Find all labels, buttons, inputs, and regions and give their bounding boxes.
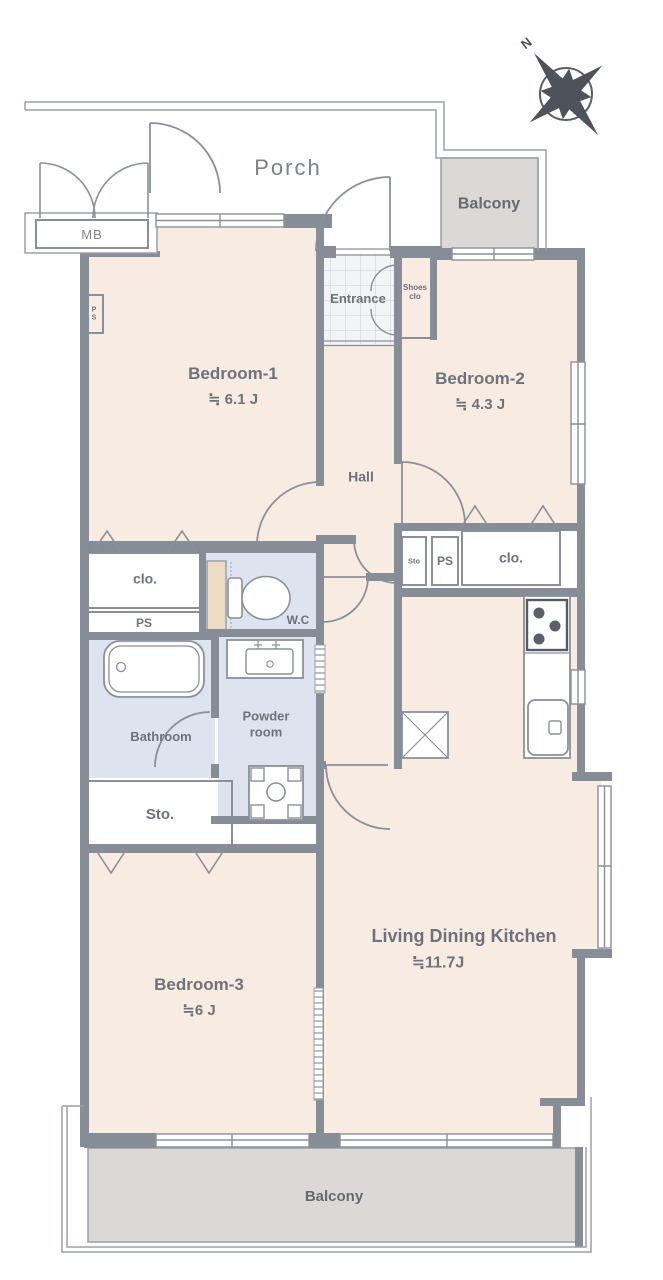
bedroom1-name: Bedroom-1 [188,364,278,384]
porch-label: Porch [254,155,321,181]
ldk-bay-window [598,786,611,948]
ldk-name: Living Dining Kitchen [372,926,557,948]
bedroom3-name: Bedroom-3 [154,975,244,995]
washing-machine-icon [249,766,303,820]
compass-rose: N [485,9,634,163]
refrigerator-space-icon [402,712,448,758]
mb-double-door-arcs [40,163,148,218]
storage-large-label: Sto. [146,806,174,824]
compass-north-label: N [518,34,535,52]
meter-box-label: MB [81,227,103,243]
floor-plan: N Porch MB Balcony Entrance Shoes clo Be… [0,0,663,1280]
bedroom1-north-window [156,214,284,227]
balcony-top-label: Balcony [458,194,520,213]
bedroom1-size: ≒ 6.1 J [208,391,258,409]
closet-right-label: clo. [499,550,523,567]
wc-label: W.C [287,613,310,627]
bedroom2-north-window [452,248,534,260]
wc-vanity [207,561,226,630]
ldk-south-window [340,1134,553,1147]
stove-icon [527,600,567,650]
shoes-closet-label: Shoes clo [403,283,427,301]
bathroom-label: Bathroom [130,729,191,745]
bathtub-icon [104,641,204,697]
floor-plan-drawing: N [0,0,663,1280]
entrance-label: Entrance [330,291,386,307]
bedroom1-floor [88,228,322,547]
ps-right-label: PS [437,554,453,568]
bedroom3-south-window [156,1134,309,1147]
hall-label: Hall [348,469,374,486]
powder-sink-icon [227,640,303,678]
balcony-bottom-label: Balcony [305,1188,363,1206]
bedroom3-size: ≒6 J [182,1002,215,1020]
powder-room-label: Powder room [243,708,290,739]
bedroom2-name: Bedroom-2 [435,369,525,389]
bedroom2-size: ≒ 4.3 J [455,396,505,414]
closet-left-label: clo. [133,571,157,588]
ldk-size: ≒11.7J [412,953,465,972]
bedroom2-east-window [571,362,585,484]
storage-small-label: Sto [408,557,420,566]
kitchen-east-window [571,670,585,704]
kitchen-sink-icon [528,700,568,755]
porch-gate-door-arc [150,123,220,193]
ps-tiny-label: P S [92,306,97,321]
ps-left-label: PS [136,616,152,630]
